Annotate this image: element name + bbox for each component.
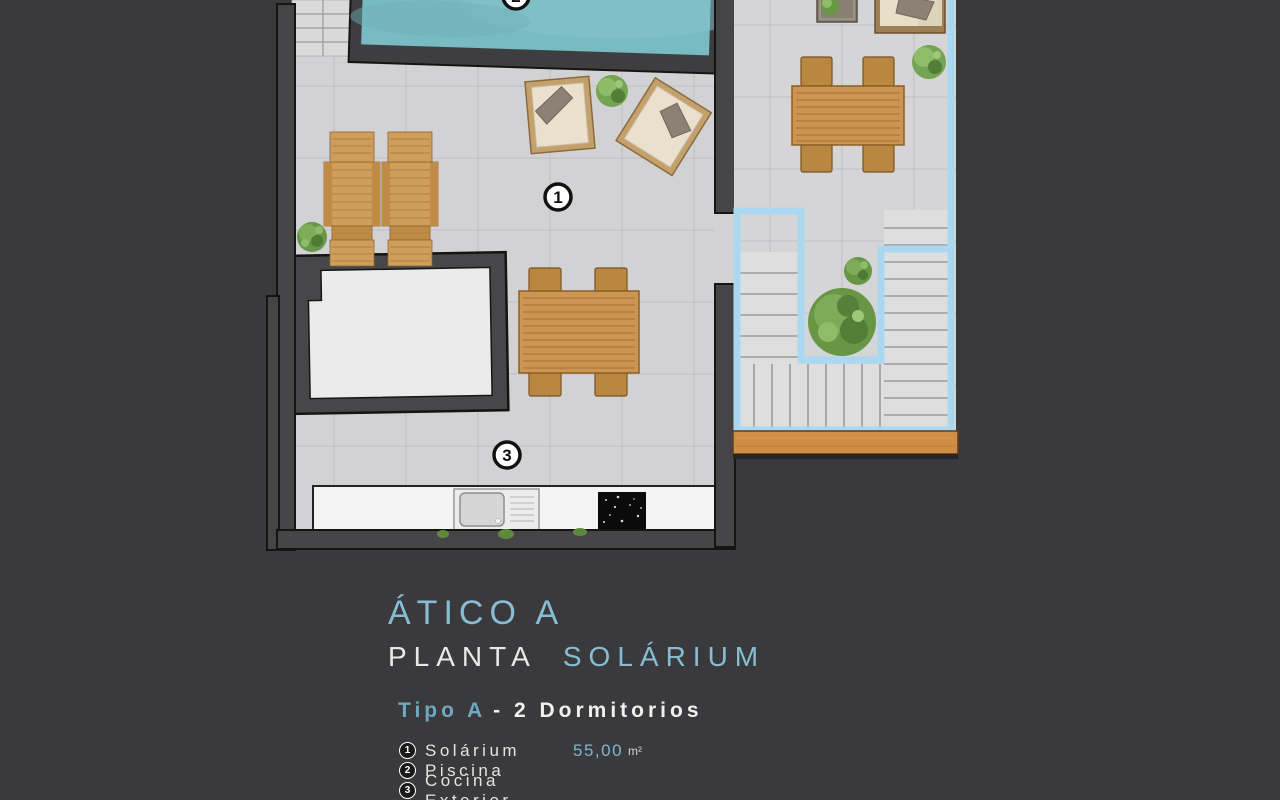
outdoor-kitchen xyxy=(313,486,717,532)
page-background: 2 xyxy=(0,0,1280,800)
legend-bullet-3: 3 xyxy=(399,782,416,799)
plan-subtitle: PLANTASOLÁRIUM xyxy=(388,641,765,673)
legend-bullet-2: 2 xyxy=(399,762,416,779)
plant-bush-large xyxy=(808,288,876,356)
marker-solarium-number: 1 xyxy=(553,188,562,207)
legend-item-solarium: 1 Solárium 55,00 m² xyxy=(399,741,642,760)
dining-table xyxy=(792,86,904,145)
access-steps xyxy=(292,0,354,56)
sun-lounger xyxy=(382,132,438,266)
neighbor-terrace xyxy=(733,0,958,459)
wall-right-upper xyxy=(715,0,735,213)
passage-floor xyxy=(714,212,736,286)
legend-item-piscina: 2 Piscina xyxy=(399,761,642,780)
plan-subtitle-right: SOLÁRIUM xyxy=(563,641,765,672)
stair-flight-right xyxy=(884,210,951,432)
kitchen-sink xyxy=(454,489,539,530)
legend-item-cocina: 3 Cocina Exterior xyxy=(399,781,642,800)
sun-lounger xyxy=(324,132,380,266)
plant-pot xyxy=(596,75,628,107)
stair-flight-bottom xyxy=(739,364,884,430)
plant-bush xyxy=(297,222,327,252)
legend-label: Cocina Exterior xyxy=(425,771,573,800)
marker-cocina: 3 xyxy=(494,442,520,468)
marker-solarium: 1 xyxy=(545,184,571,210)
marker-piscina-number: 2 xyxy=(511,0,520,6)
stair-flight-left xyxy=(739,252,802,364)
legend: 1 Solárium 55,00 m² 2 Piscina 3 Cocina E… xyxy=(399,741,642,800)
pool xyxy=(349,0,743,74)
legend-bullet-1: 1 xyxy=(399,742,416,759)
floor-plan: 2 xyxy=(0,0,1280,566)
wall-left-jog xyxy=(267,296,279,550)
marker-cocina-number: 3 xyxy=(502,446,511,465)
plan-type-rest: - 2 Dormitorios xyxy=(493,699,702,722)
stair-enclosure xyxy=(292,252,509,414)
legend-area-value: 55,00 xyxy=(573,741,623,761)
plant-bush xyxy=(844,257,872,285)
legend-area-unit: m² xyxy=(628,744,642,758)
plan-type-accent: Tipo A xyxy=(398,699,486,722)
legend-label: Piscina xyxy=(425,761,573,781)
legend-label: Solárium xyxy=(425,741,573,761)
kitchen-hob xyxy=(598,492,646,529)
armchair xyxy=(525,76,595,153)
main-terrace: 2 xyxy=(267,0,742,550)
sofa xyxy=(875,0,945,33)
plan-subtitle-left: PLANTA xyxy=(388,641,537,672)
plant-pot xyxy=(912,45,946,79)
side-table xyxy=(817,0,857,22)
plan-type-line: Tipo A- 2 Dormitorios xyxy=(398,699,703,723)
deck-strip xyxy=(733,431,958,459)
plan-title: ÁTICO A xyxy=(388,594,564,633)
wall-right-lower xyxy=(715,284,735,547)
